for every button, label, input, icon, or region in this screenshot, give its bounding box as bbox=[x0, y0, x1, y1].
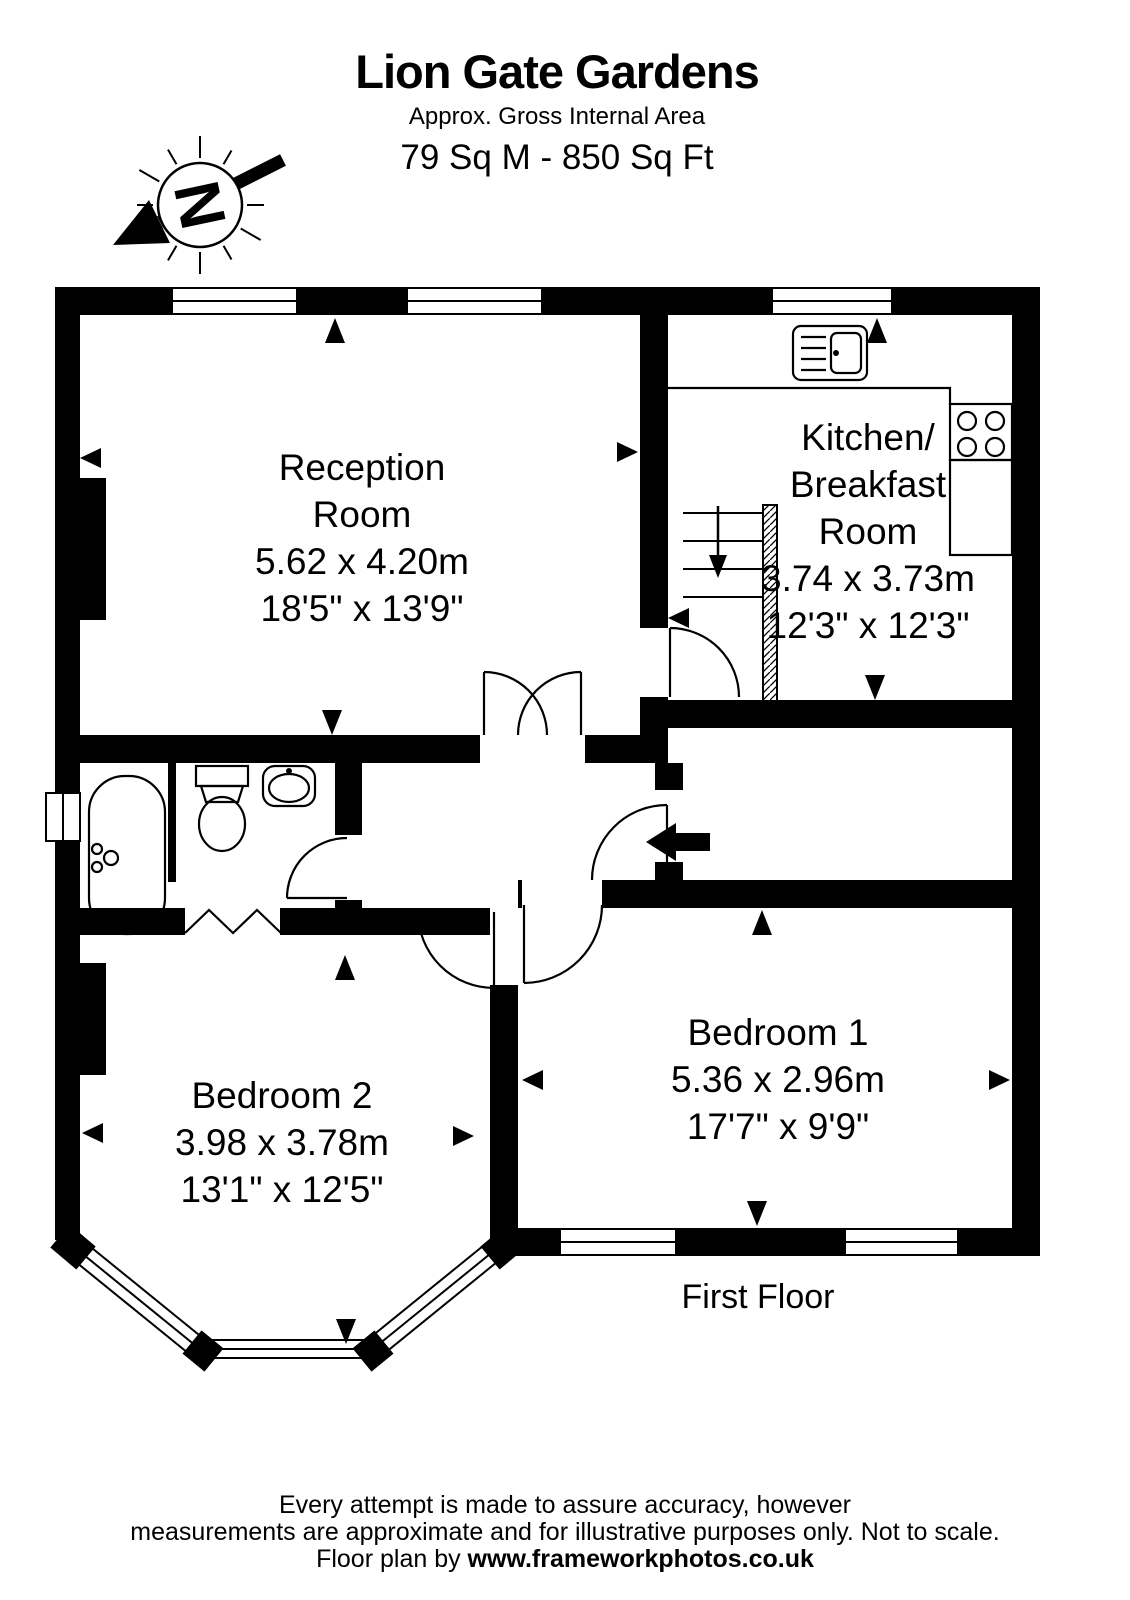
room-name: Room bbox=[255, 491, 469, 538]
gross-internal-area: 79 Sq M - 850 Sq Ft bbox=[400, 138, 713, 178]
measure-arrow-left bbox=[80, 448, 101, 468]
kitchen-door bbox=[670, 628, 739, 697]
disclaimer-line: measurements are approximate and for ill… bbox=[130, 1519, 999, 1546]
bathroom-window bbox=[46, 793, 80, 841]
disclaimer-line: Every attempt is made to assure accuracy… bbox=[130, 1492, 999, 1519]
measure-arrow-up bbox=[325, 318, 345, 343]
window bbox=[172, 288, 297, 314]
room-dimensions-imperial: 18'5" x 13'9" bbox=[255, 585, 469, 632]
floor-label: First Floor bbox=[682, 1278, 835, 1317]
bay-window bbox=[55, 1231, 514, 1360]
reception-double-doors bbox=[484, 672, 581, 735]
kitchen-counter bbox=[668, 388, 950, 404]
measure-arrow-up bbox=[752, 910, 772, 935]
room-dimensions-metric: 3.74 x 3.73m bbox=[761, 555, 975, 602]
page-title: Lion Gate Gardens bbox=[355, 44, 758, 99]
room-dimensions-metric: 3.98 x 3.78m bbox=[175, 1119, 389, 1166]
measure-arrow-right bbox=[453, 1126, 474, 1146]
bay-corners bbox=[60, 1236, 514, 1360]
kitchen-room-label: Kitchen/ Breakfast Room 3.74 x 3.73m 12'… bbox=[761, 414, 975, 649]
measure-arrow-left bbox=[522, 1070, 543, 1090]
measure-arrow-left bbox=[668, 608, 689, 628]
window bbox=[772, 288, 892, 314]
window bbox=[560, 1229, 676, 1255]
measure-arrow-right bbox=[617, 442, 638, 462]
measure-arrow-down bbox=[865, 675, 885, 700]
window bbox=[407, 288, 542, 314]
stairs-down-arrow bbox=[709, 555, 727, 578]
disclaimer: Every attempt is made to assure accuracy… bbox=[130, 1492, 999, 1573]
measure-arrow-left bbox=[82, 1123, 103, 1143]
credit-url: www.frameworkphotos.co.uk bbox=[468, 1545, 814, 1573]
room-name: Reception bbox=[255, 444, 469, 491]
bedroom1-room-label: Bedroom 1 5.36 x 2.96m 17'7" x 9'9" bbox=[671, 1009, 885, 1150]
measure-arrow-up bbox=[335, 955, 355, 980]
measure-arrow-up bbox=[867, 318, 887, 343]
room-dimensions-metric: 5.36 x 2.96m bbox=[671, 1056, 885, 1103]
room-name: Breakfast bbox=[761, 461, 975, 508]
credit-line: Floor plan by www.frameworkphotos.co.uk bbox=[130, 1546, 999, 1573]
room-dimensions-imperial: 12'3" x 12'3" bbox=[761, 602, 975, 649]
credit-prefix: Floor plan by bbox=[316, 1545, 467, 1573]
toilet-icon bbox=[196, 766, 248, 851]
room-dimensions-imperial: 13'1" x 12'5" bbox=[175, 1166, 389, 1213]
reception-room-label: Reception Room 5.62 x 4.20m 18'5" x 13'9… bbox=[255, 444, 469, 632]
room-name: Bedroom 1 bbox=[671, 1009, 885, 1056]
bedroom2-room-label: Bedroom 2 3.98 x 3.78m 13'1" x 12'5" bbox=[175, 1072, 389, 1213]
room-name: Bedroom 2 bbox=[175, 1072, 389, 1119]
room-dimensions-metric: 5.62 x 4.20m bbox=[255, 538, 469, 585]
north-indicator-icon: N bbox=[113, 136, 283, 274]
measure-arrow-right bbox=[989, 1070, 1010, 1090]
subtitle: Approx. Gross Internal Area bbox=[409, 103, 705, 131]
floorplan-page: N bbox=[0, 0, 1130, 1600]
room-name: Room bbox=[761, 508, 975, 555]
sink-icon bbox=[793, 326, 867, 380]
bedroom1-door bbox=[524, 905, 602, 983]
room-name: Kitchen/ bbox=[761, 414, 975, 461]
measure-arrow-down bbox=[322, 710, 342, 735]
measure-arrow-down bbox=[747, 1201, 767, 1226]
room-dimensions-imperial: 17'7" x 9'9" bbox=[671, 1103, 885, 1150]
basin-icon bbox=[263, 766, 315, 806]
window bbox=[845, 1229, 958, 1255]
floor-plan: N bbox=[0, 0, 1130, 1600]
